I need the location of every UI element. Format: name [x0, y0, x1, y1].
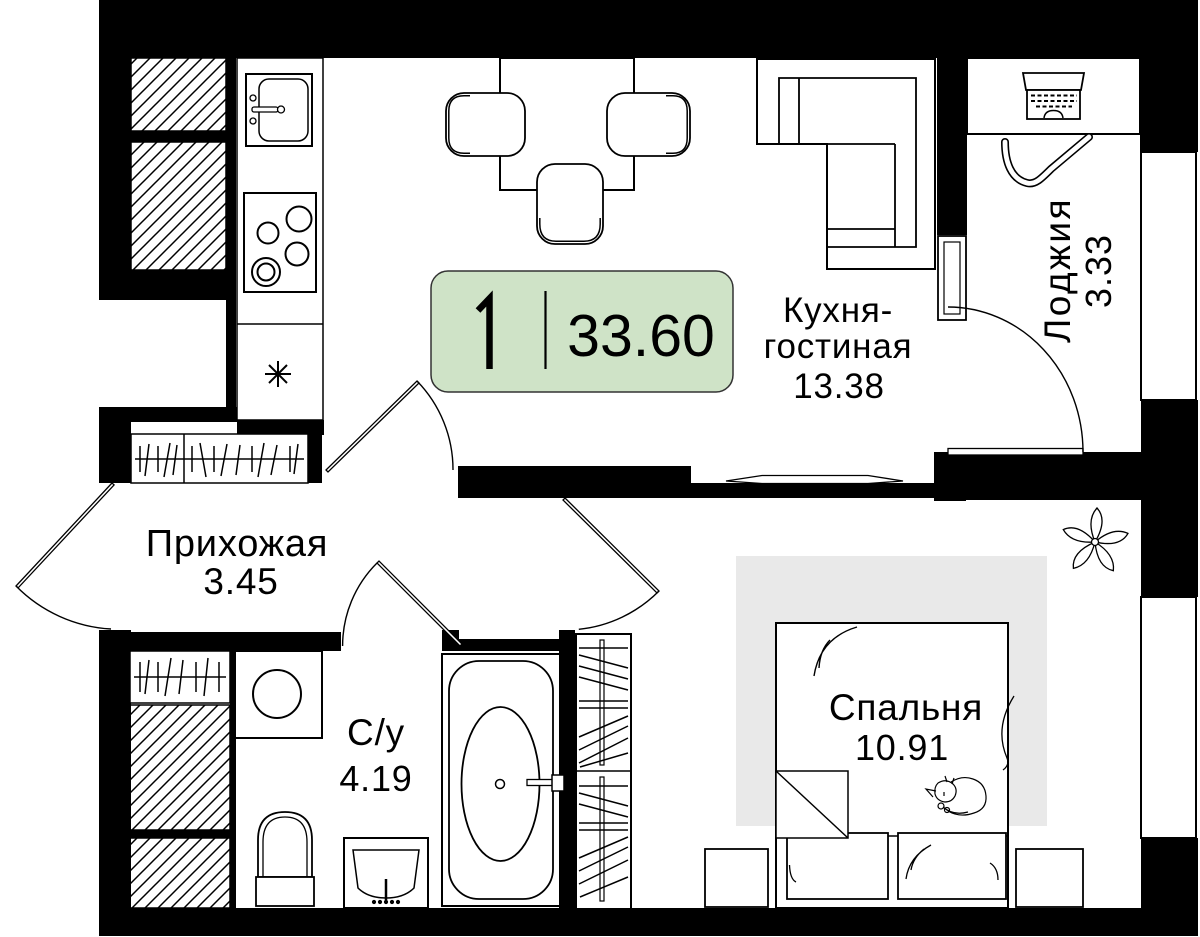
- svg-text:3.45: 3.45: [203, 561, 278, 602]
- svg-text:Спальня: Спальня: [829, 687, 983, 728]
- svg-text:10.91: 10.91: [855, 727, 949, 768]
- svg-text:33.60: 33.60: [567, 303, 715, 369]
- svg-text:Лоджия: Лоджия: [1037, 197, 1078, 343]
- svg-text:Кухня-: Кухня-: [783, 291, 893, 330]
- svg-text:3.33: 3.33: [1078, 234, 1119, 308]
- svg-text:С/у: С/у: [347, 712, 405, 753]
- svg-text:Прихожая: Прихожая: [146, 523, 328, 565]
- svg-text:гостиная: гостиная: [764, 327, 913, 366]
- svg-text:13.38: 13.38: [793, 367, 885, 406]
- svg-text:4.19: 4.19: [339, 758, 412, 799]
